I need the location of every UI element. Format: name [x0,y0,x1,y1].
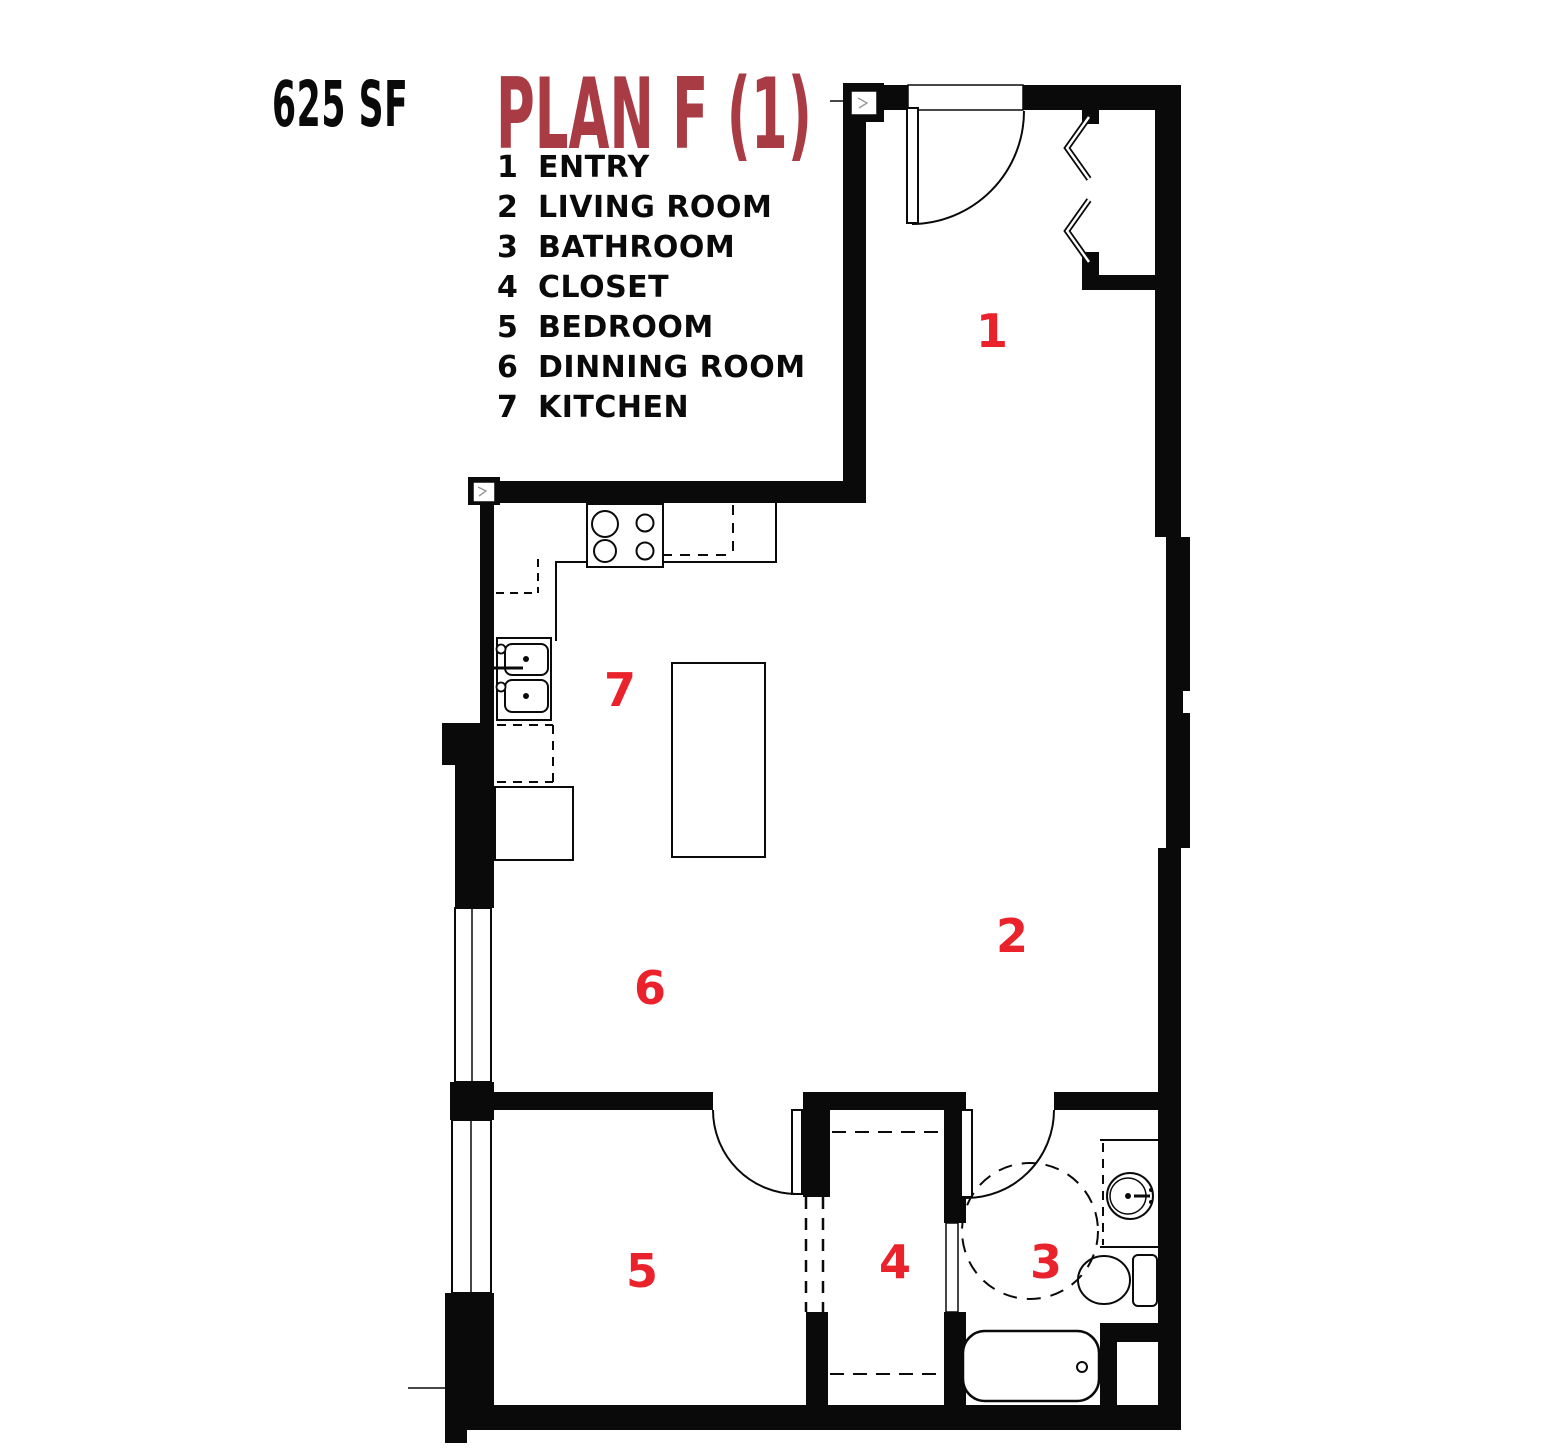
room-label-bedroom: 5 [626,1248,658,1294]
sink-drain [1125,1193,1131,1199]
upper-cabinet-dashed [497,725,553,782]
entry-closet-bifold-doors [1067,117,1089,262]
faucet-handle [1149,1200,1153,1204]
entry-door-swing-arc [912,111,1024,224]
bathtub [963,1331,1099,1401]
bifold-door-panel [1067,200,1089,262]
room-label-living-room: 2 [996,913,1028,959]
floor-plan-page: 625 SF PLAN F (1) 1ENTRY 2LIVING ROOM 3B… [0,0,1563,1455]
column-symbols [473,91,877,502]
bathroom-door [961,1110,1054,1198]
closet-bath-thin-wall [946,1223,958,1312]
room-label-bathroom: 3 [1030,1239,1062,1285]
toilet-tank [1133,1255,1157,1306]
base-cabinet [495,787,573,860]
wall-closet-left-lower [806,1312,828,1405]
room-label-closet: 4 [879,1239,911,1285]
wall-bathroom-top [1054,1092,1162,1110]
kitchen-island [672,663,765,857]
walls [442,83,1190,1443]
room-label-dinning-room: 6 [634,965,666,1011]
wall-left-upper [480,503,494,723]
wall-tub-side-horizontal [1100,1323,1160,1342]
wall-right-upper [1155,85,1181,537]
faucet-handle [497,683,506,692]
wall-notch [1183,691,1191,713]
window-dining [455,908,491,1082]
stove [587,504,663,567]
wall-closet-left-upper [803,1092,830,1197]
wall-left-kitchen [455,765,494,908]
upper-cabinet-dashed [496,559,538,593]
closet-sliding-door-dashed [806,1197,823,1312]
room-label-entry: 1 [976,308,1008,354]
wall-bottom [445,1405,1181,1430]
entry-door [907,85,1024,224]
entry-door-threshold [908,85,1023,110]
wall-left-bedroom [445,1293,494,1405]
wall-entry-left [843,85,866,503]
sink-drain [523,656,529,662]
room-label-kitchen: 7 [604,667,636,713]
bathroom-door-leaf [961,1110,972,1197]
bifold-door-panel [1067,117,1089,179]
upper-cabinet-dashed [662,505,733,555]
wall-kitchen-top [494,481,866,503]
wall-bedroom-top [490,1092,713,1110]
wall-right-lower [1158,848,1181,1430]
faucet-handle [497,645,506,654]
faucet-handle [1149,1188,1153,1192]
window-bedroom [452,1120,491,1293]
kitchen-sink [492,638,551,720]
wall-left-between-windows [450,1082,494,1120]
wall-entry-closet-bottom [1082,275,1158,290]
column-symbol-entry [851,91,877,115]
bathroom-door-swing-arc [966,1110,1054,1198]
bedroom-door-swing-arc [713,1110,796,1194]
sink-drain [523,693,529,699]
vanity [1100,1140,1158,1247]
bedroom-door-leaf [792,1110,802,1194]
toilet-bowl [1078,1256,1130,1304]
tub-drain [1077,1362,1087,1372]
wall-top-left [880,85,908,110]
bedroom-door [713,1110,802,1194]
floor-plan-drawing [0,0,1563,1455]
wall-left-pier [442,723,494,765]
entry-door-leaf [907,108,918,223]
